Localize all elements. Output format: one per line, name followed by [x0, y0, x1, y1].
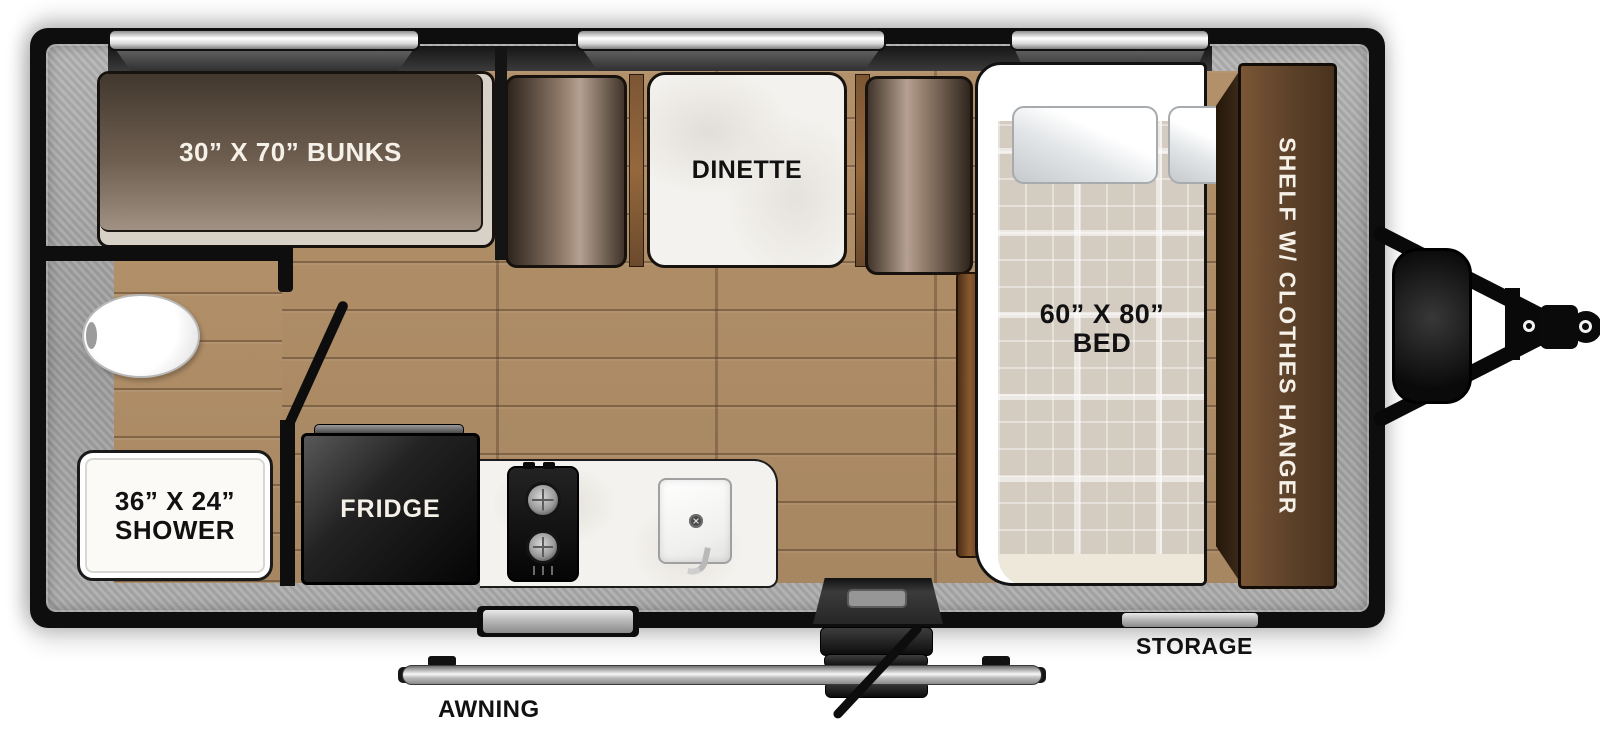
- bed-foot-blanket: [998, 554, 1207, 586]
- burner-icon: [526, 530, 560, 564]
- bathroom-wall-lower: [280, 420, 295, 586]
- stove-knob: [543, 462, 555, 469]
- awning-rail-icon: [402, 665, 1042, 685]
- kitchen-window-icon: [483, 610, 633, 633]
- stove-tick: [551, 566, 553, 575]
- hitch-ball-highlight: [1579, 320, 1592, 333]
- dinette-seat-right: [865, 76, 973, 275]
- table-support: [629, 74, 644, 267]
- pillow-icon: [1168, 106, 1222, 184]
- bunks-label: 30” X 70” BUNKS: [179, 138, 402, 166]
- shower: 36” X 24” SHOWER: [77, 450, 273, 581]
- bathroom-wall-stub: [278, 246, 293, 292]
- window-over-bed-icon: [1010, 29, 1210, 51]
- entry-door-panel: [847, 589, 907, 608]
- sink-drain-icon: ⨯: [689, 514, 703, 528]
- bed-label: 60” X 80” BED: [997, 300, 1207, 358]
- burner-icon: [525, 482, 561, 518]
- rv-floorplan: 30” X 70” BUNKS DINETTE 60” X 80” BED SH…: [0, 0, 1600, 730]
- shelf-label: SHELF W/ CLOTHES HANGER: [1238, 63, 1337, 589]
- stove-tick: [533, 566, 535, 575]
- dinette-label: DINETTE: [692, 157, 802, 184]
- fridge: FRIDGE: [301, 433, 480, 585]
- window-shade-icon: [583, 50, 879, 71]
- stove-knob: [523, 462, 535, 469]
- awning-label: AWNING: [438, 697, 540, 723]
- toilet-flush-icon: [86, 322, 97, 349]
- safety-pin-hole-icon: [1523, 320, 1535, 332]
- window-over-bunks-icon: [108, 29, 420, 51]
- window-over-dinette-icon: [576, 29, 886, 51]
- storage-door-icon: [1122, 613, 1258, 627]
- pillow-icon: [1012, 106, 1158, 184]
- bunks-area: 30” X 70” BUNKS: [97, 71, 495, 248]
- dinette-table: DINETTE: [647, 72, 847, 268]
- propane-tank-icon: [1392, 248, 1472, 404]
- dinette-seat-left: [505, 75, 627, 268]
- shelf-side-panel: [1216, 70, 1240, 582]
- toilet-icon: [82, 294, 200, 378]
- bathroom-wall: [30, 246, 283, 261]
- stove-icon: [507, 466, 579, 582]
- stove-tick: [542, 566, 544, 575]
- window-shade-icon: [116, 50, 413, 71]
- bunk-mattress: 30” X 70” BUNKS: [100, 74, 483, 232]
- storage-label: STORAGE: [1136, 634, 1253, 659]
